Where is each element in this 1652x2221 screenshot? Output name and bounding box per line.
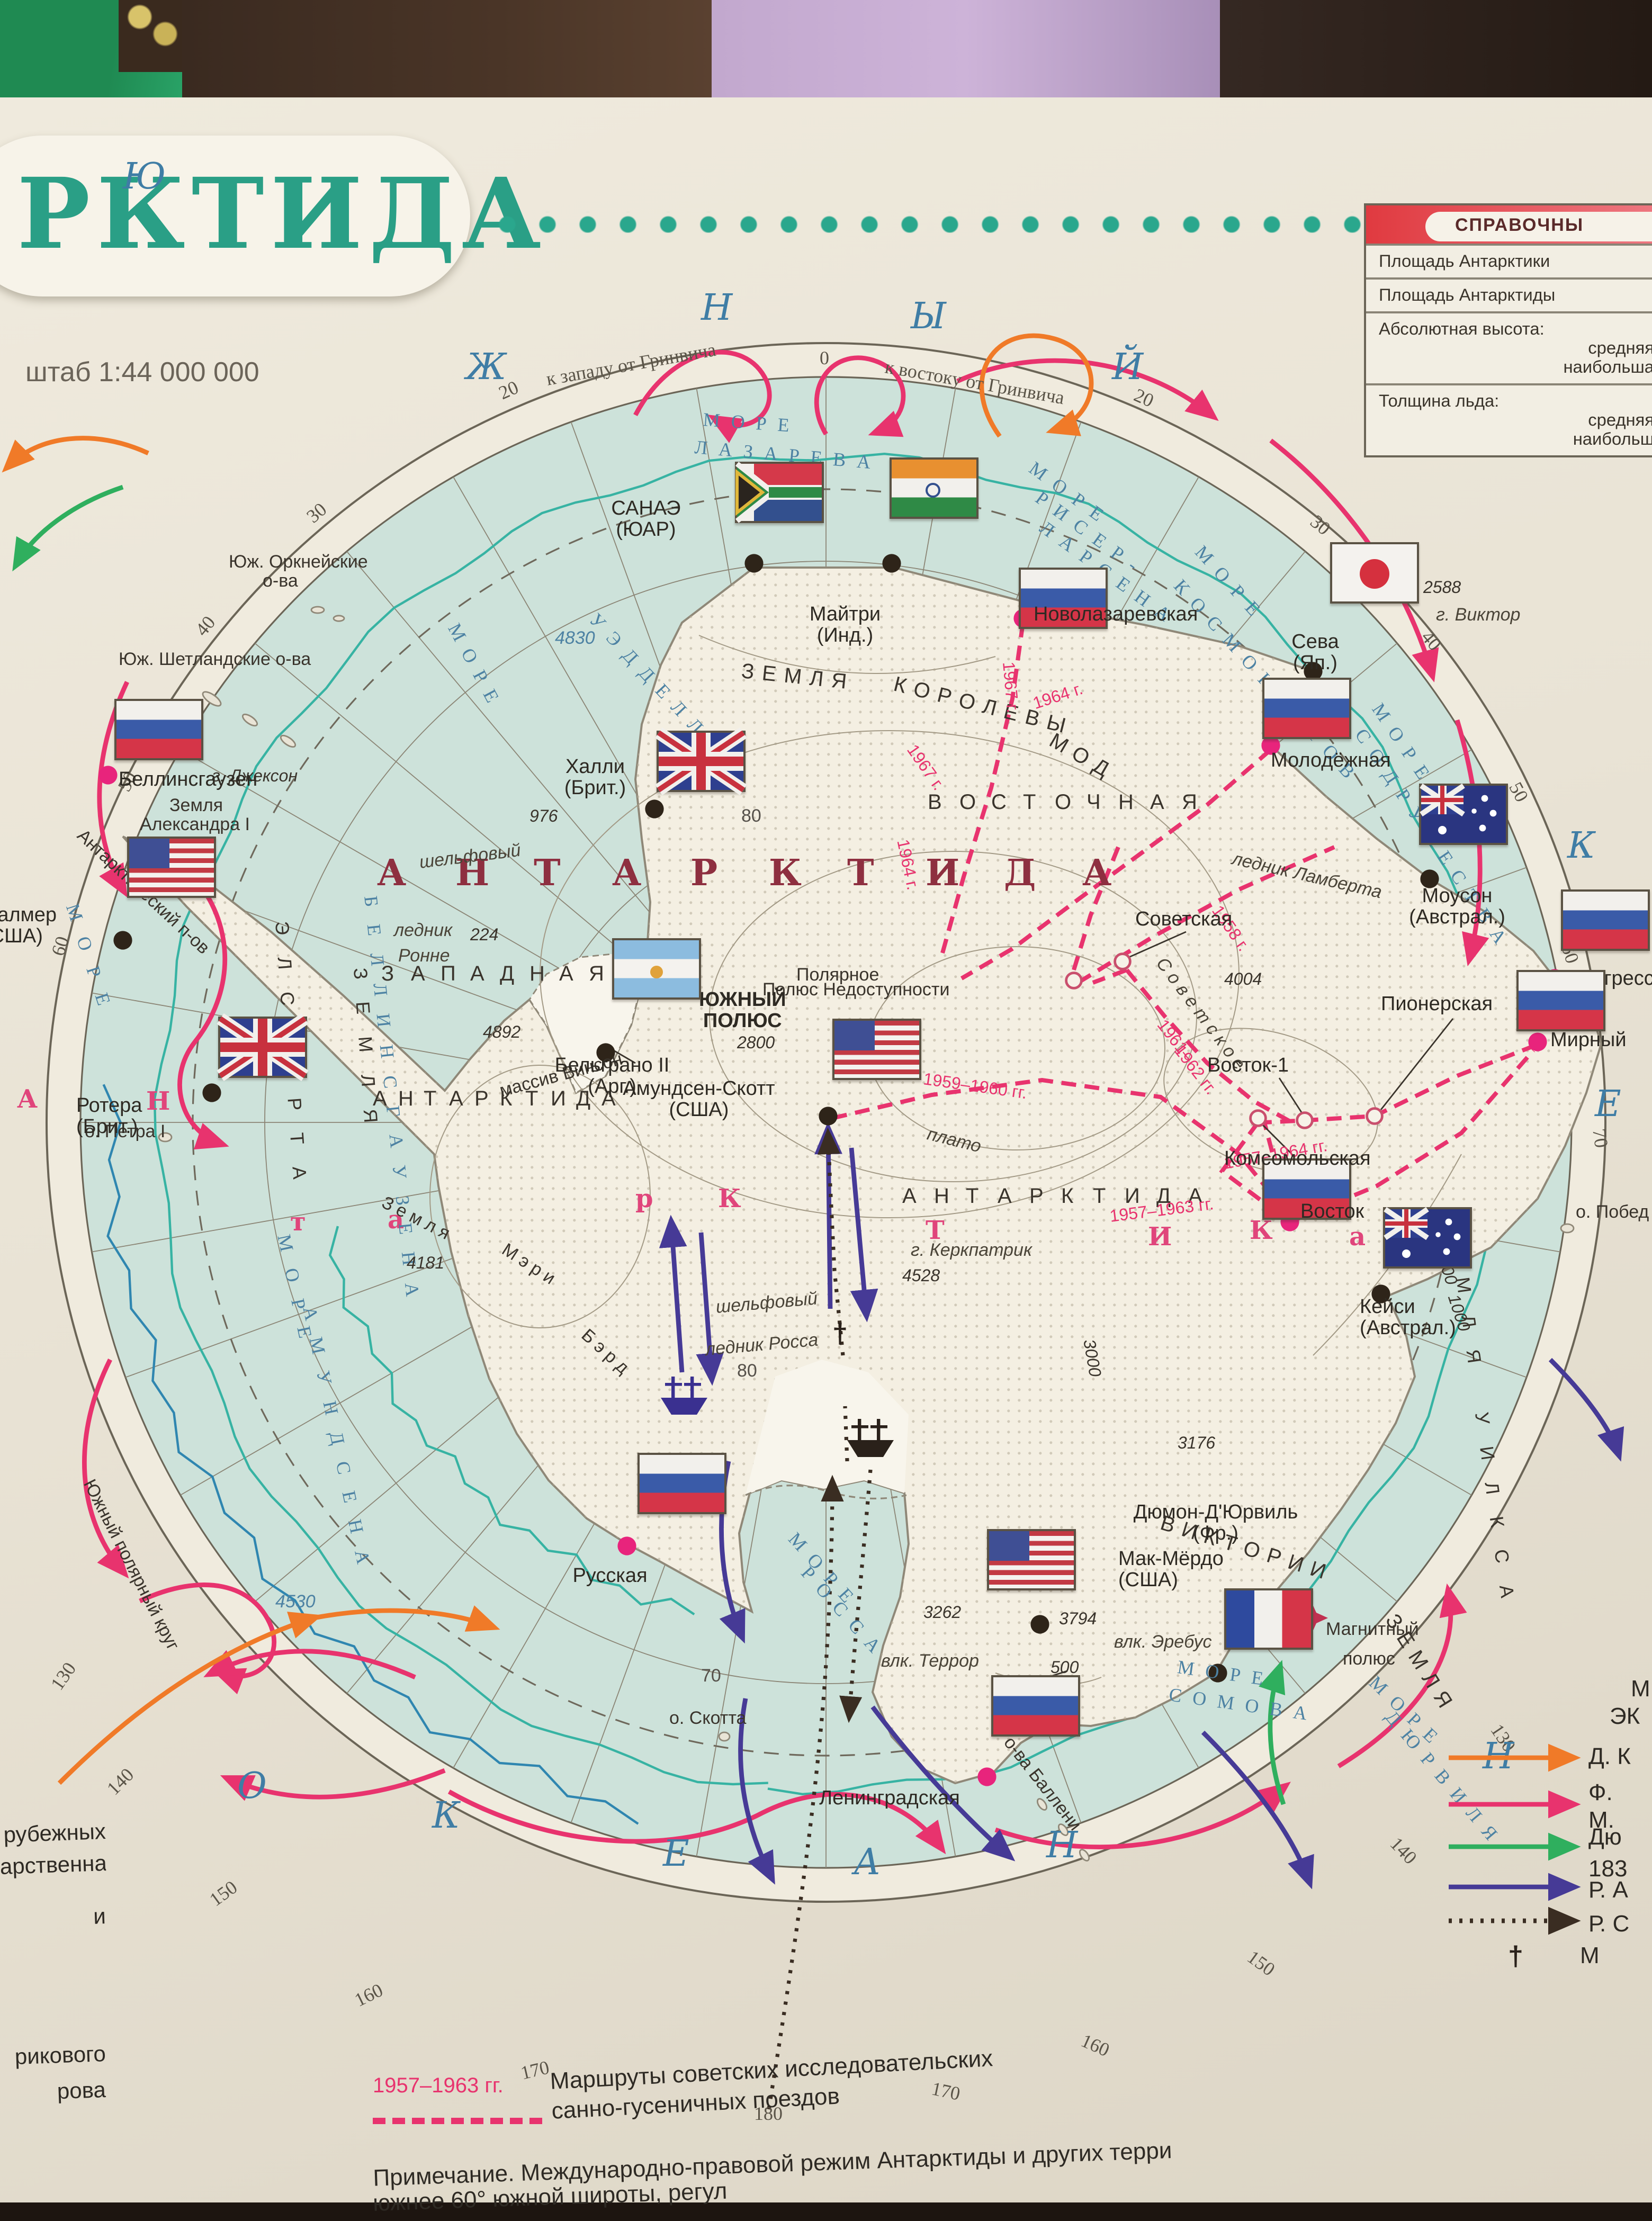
map-label: рубежных bbox=[0, 1820, 106, 1849]
map-label: арственная bbox=[0, 1851, 106, 1881]
info-box: СПРАВОЧНЫ Площадь АнтарктикиПлощадь Анта… bbox=[1364, 203, 1652, 457]
info-row-sub: наибольша bbox=[1379, 358, 1652, 377]
info-row-label: Толщина льда: bbox=[1379, 392, 1652, 411]
info-row: Толщина льда:средняянаибольш bbox=[1366, 383, 1652, 455]
info-row: Площадь Антарктиды bbox=[1366, 277, 1652, 311]
legend-years: 1957–1963 гг. bbox=[373, 2075, 504, 2099]
map-label: и bbox=[0, 1904, 106, 1934]
info-row: Площадь Антарктики bbox=[1366, 244, 1652, 277]
info-box-header-label: СПРАВОЧНЫ bbox=[1425, 212, 1652, 241]
info-row-label: Площадь Антарктиды bbox=[1379, 286, 1652, 305]
legend-dashed-sample bbox=[373, 2118, 542, 2124]
info-row-label: Площадь Антарктики bbox=[1379, 252, 1652, 271]
info-row-sub: наибольш bbox=[1379, 430, 1652, 449]
info-row-sub: средняя bbox=[1379, 411, 1652, 430]
info-row-sub: средняя bbox=[1379, 339, 1652, 358]
legend-label-cut: Р. С bbox=[1588, 1912, 1629, 1941]
map-label: рова bbox=[0, 2078, 106, 2107]
info-row: Абсолютная высота:средняянаибольша bbox=[1366, 311, 1652, 383]
info-row-label: Абсолютная высота: bbox=[1379, 320, 1652, 339]
info-box-header: СПРАВОЧНЫ bbox=[1366, 205, 1652, 244]
map-label: рикового bbox=[0, 2042, 106, 2071]
photographed-atlas-page: РКТИДА штаб 1:44 000 000 bbox=[0, 0, 1652, 2202]
legend-cross: † bbox=[1508, 1940, 1523, 1972]
legend-label-cut: М bbox=[1580, 1944, 1600, 1973]
